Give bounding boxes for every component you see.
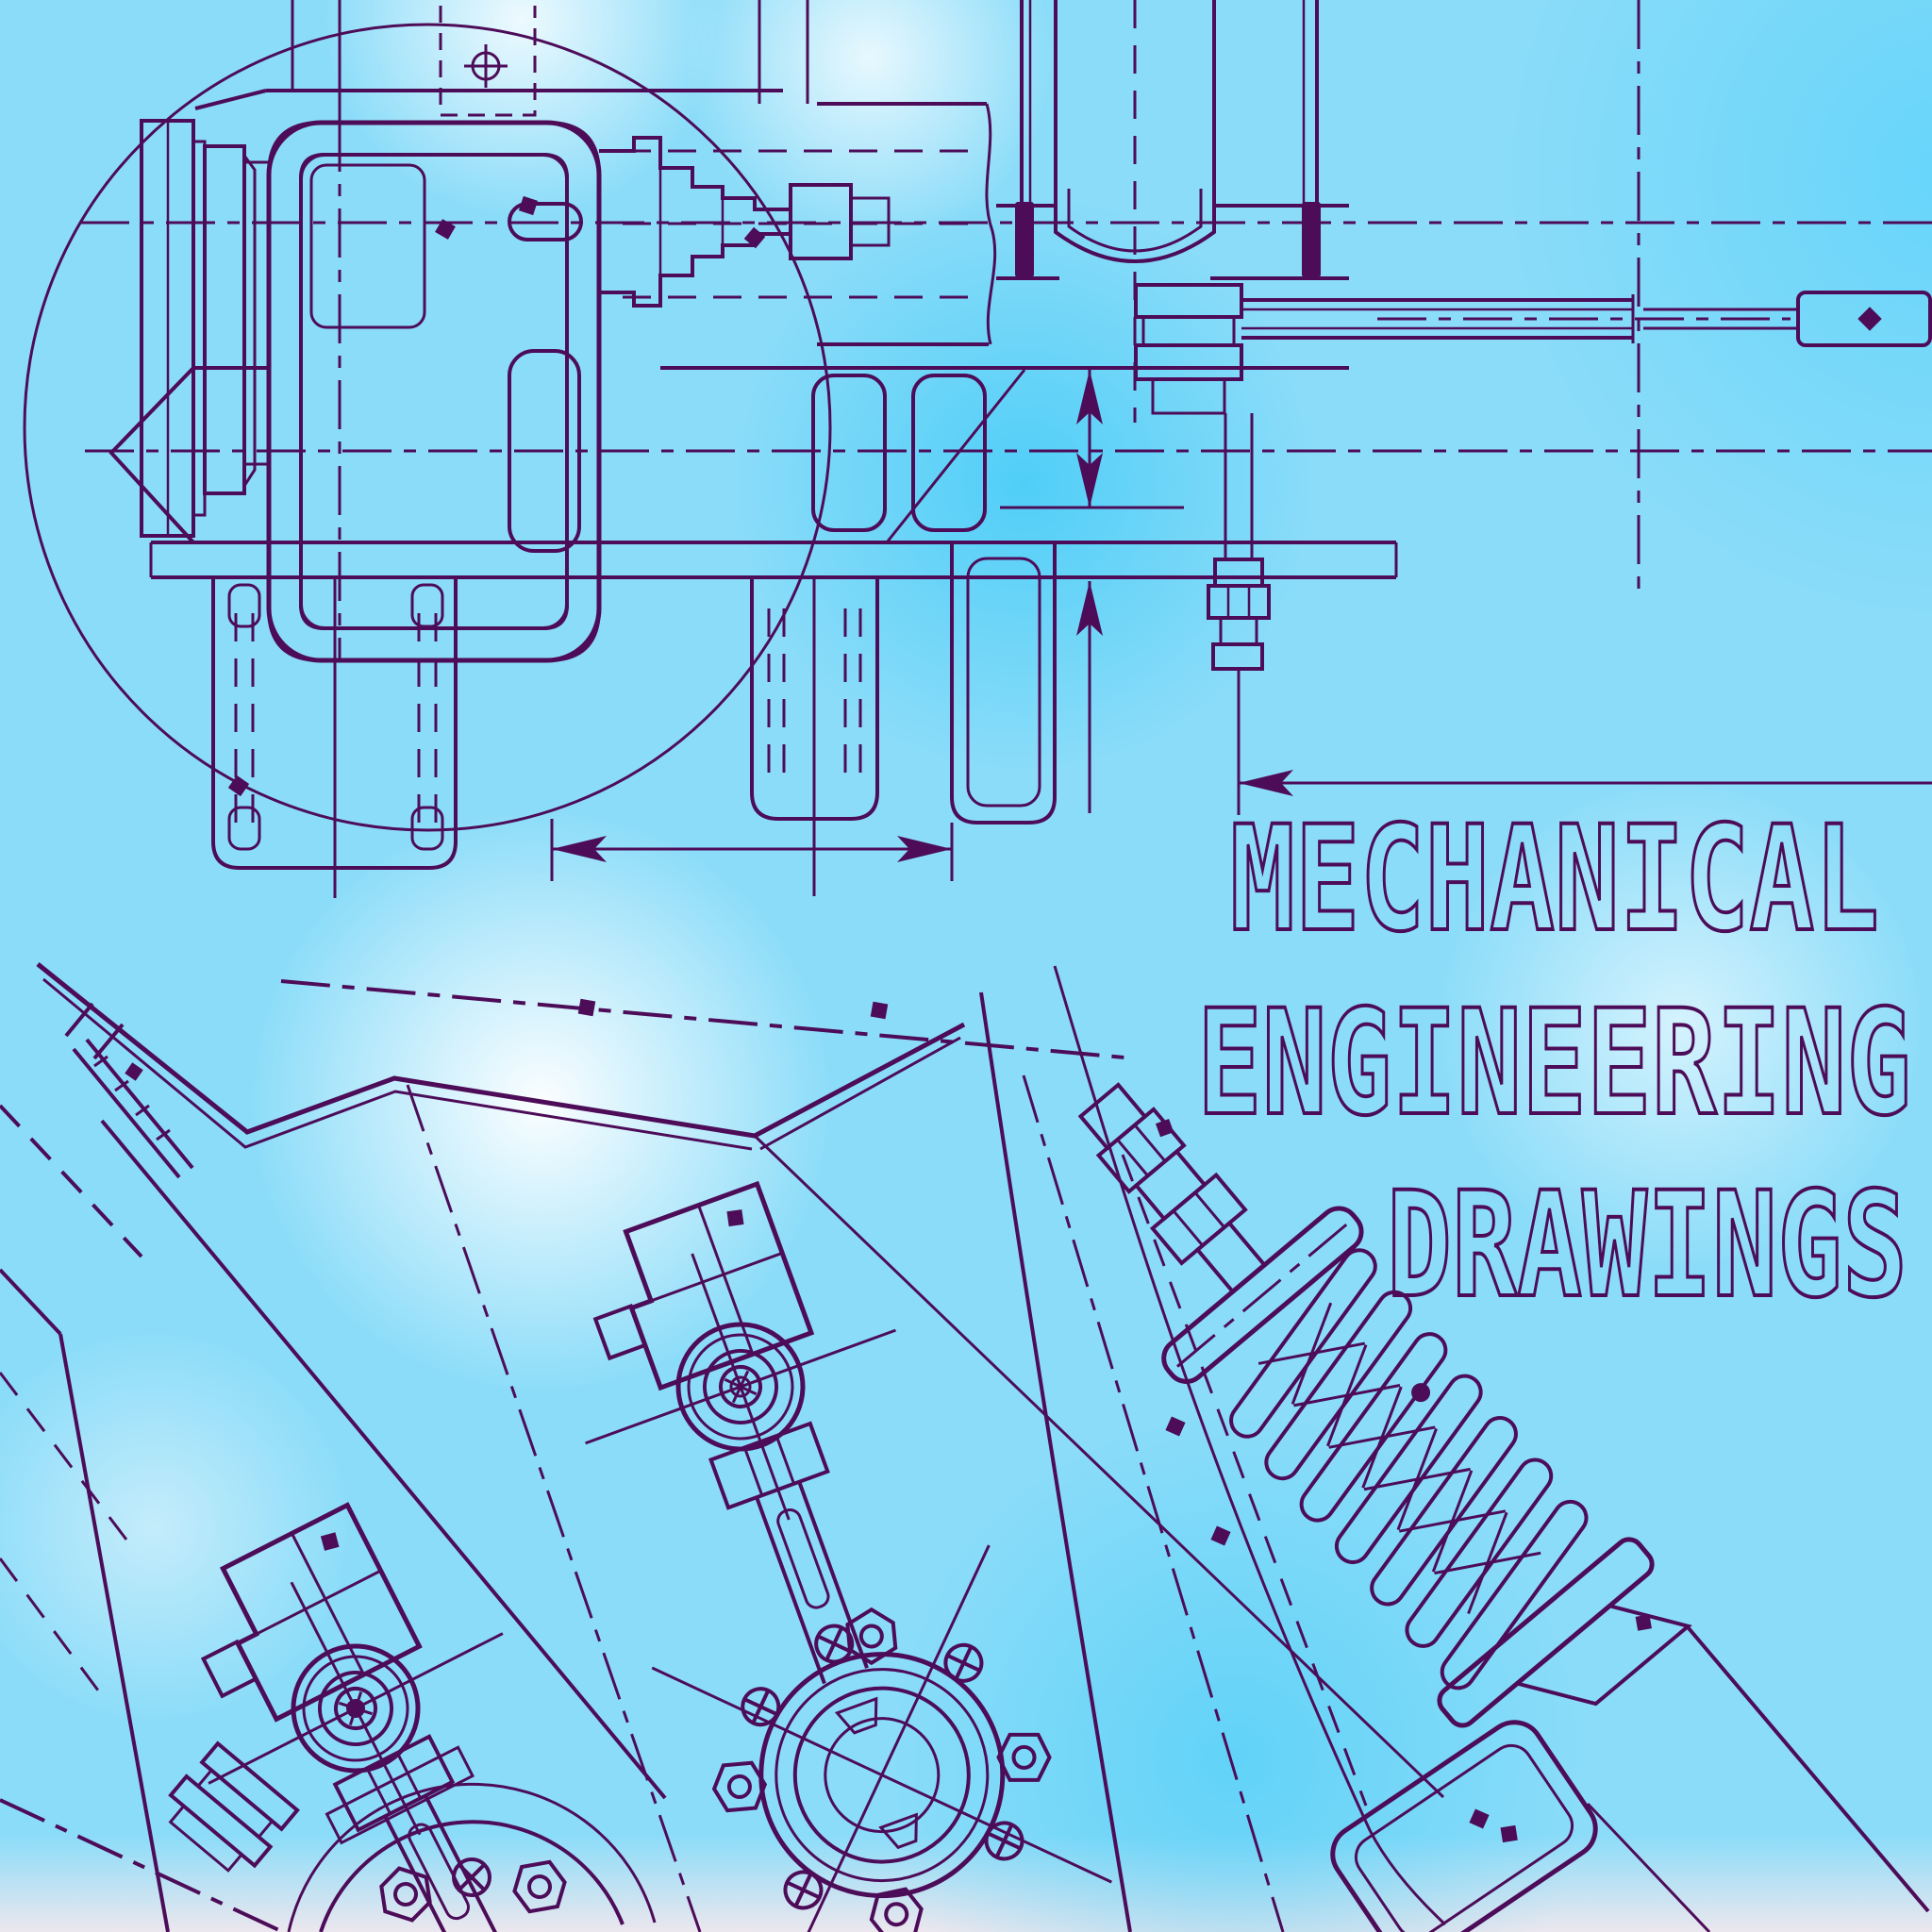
blueprint-illustration: MECHANICAL ENGINEERING DRAWINGS	[0, 0, 1932, 1932]
motor-assembly	[142, 121, 269, 536]
base-plate	[151, 542, 1396, 577]
grease-fitting-bolt	[1208, 559, 1269, 815]
title-line-3: DRAWINGS	[1387, 1161, 1907, 1330]
clevis-bracket	[996, 0, 1349, 423]
title-text: MECHANICAL ENGINEERING DRAWINGS	[1197, 795, 1911, 1330]
centerlines	[80, 0, 1932, 660]
title-line-2: ENGINEERING	[1197, 979, 1911, 1148]
detail-circle-view	[25, 25, 830, 830]
pedestal-left	[213, 577, 456, 898]
frame-top-edge	[195, 0, 808, 123]
blueprint-cover: MECHANICAL ENGINEERING DRAWINGS	[0, 0, 1932, 1932]
corner-diagonals	[1588, 1628, 1928, 1932]
flange-wheel	[652, 1545, 1111, 1932]
packing-gland	[1136, 285, 1252, 559]
valve-assembly-lower	[125, 1469, 644, 1932]
piston-rod	[1241, 292, 1930, 345]
pedestal-right	[952, 542, 1055, 823]
bell-housing	[269, 123, 599, 660]
support-beam	[111, 368, 1349, 542]
title-line-1: MECHANICAL	[1230, 795, 1879, 964]
datum-target-symbol	[441, 6, 535, 115]
